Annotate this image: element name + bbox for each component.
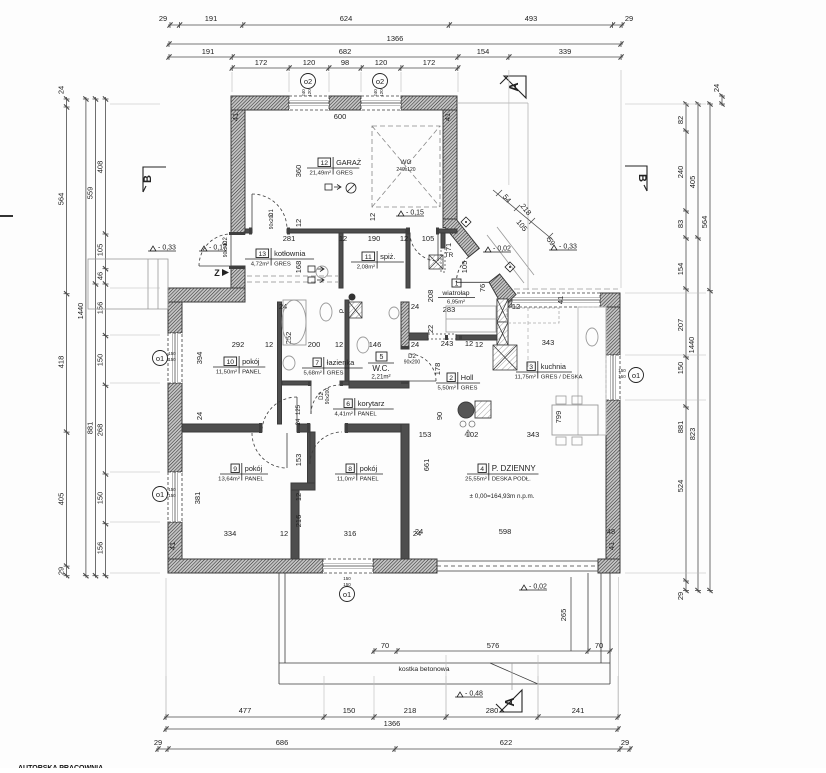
svg-text:48: 48 [607, 527, 615, 536]
svg-text:268: 268 [96, 424, 105, 437]
svg-text:120: 120 [379, 89, 384, 97]
svg-text:8: 8 [348, 466, 352, 473]
svg-text:98: 98 [341, 58, 349, 67]
svg-text:PANEL: PANEL [242, 369, 262, 375]
svg-text:316: 316 [344, 529, 357, 538]
svg-text:90x200: 90x200 [269, 213, 275, 230]
svg-text:70: 70 [381, 641, 389, 650]
svg-text:168: 168 [294, 261, 303, 274]
svg-text:24: 24 [195, 412, 204, 420]
svg-text:4,72m²: 4,72m² [251, 261, 269, 267]
svg-text:881: 881 [676, 421, 685, 434]
svg-text:12: 12 [321, 160, 329, 167]
svg-text:12: 12 [335, 340, 343, 349]
svg-text:pokój: pokój [245, 464, 263, 473]
svg-text:7: 7 [315, 360, 319, 367]
svg-text:o1: o1 [632, 371, 640, 380]
svg-text:WG: WG [400, 159, 411, 166]
svg-text:46: 46 [96, 272, 105, 280]
svg-text:4: 4 [480, 466, 484, 473]
svg-text:120: 120 [375, 58, 388, 67]
svg-text:korytarz: korytarz [358, 399, 385, 408]
svg-text:343: 343 [527, 430, 540, 439]
svg-text:PANEL: PANEL [360, 476, 380, 482]
svg-text:125: 125 [296, 404, 302, 415]
svg-text:799: 799 [554, 411, 563, 424]
svg-text:pokój: pokój [242, 357, 260, 366]
svg-text:120: 120 [307, 89, 312, 97]
svg-text:240: 240 [676, 166, 685, 179]
svg-text:477: 477 [239, 706, 252, 715]
svg-text:41: 41 [231, 113, 240, 121]
svg-text:5,50m²: 5,50m² [437, 385, 455, 391]
svg-text:90: 90 [435, 412, 444, 420]
svg-text:GRES: GRES [336, 170, 353, 176]
svg-text:13,64m²: 13,64m² [218, 476, 240, 482]
svg-text:150: 150 [96, 492, 105, 505]
svg-text:76: 76 [478, 284, 487, 292]
svg-text:3: 3 [529, 364, 533, 371]
svg-text:12: 12 [339, 234, 347, 243]
svg-text:191: 191 [202, 47, 215, 56]
svg-text:- 0,33: - 0,33 [158, 245, 176, 252]
svg-text:25,55m²: 25,55m² [465, 476, 487, 482]
svg-text:191: 191 [205, 14, 218, 23]
svg-text:241: 241 [572, 706, 585, 715]
svg-text:24: 24 [296, 418, 302, 425]
svg-text:105: 105 [460, 261, 469, 274]
svg-text:41: 41 [443, 113, 452, 121]
svg-text:o1: o1 [156, 490, 164, 499]
svg-text:łazienka: łazienka [327, 358, 355, 367]
svg-text:150: 150 [343, 706, 356, 715]
svg-text:153: 153 [419, 430, 432, 439]
svg-text:82: 82 [676, 116, 685, 124]
svg-text:200: 200 [308, 340, 321, 349]
svg-text:29: 29 [676, 592, 685, 600]
svg-text:154: 154 [676, 263, 685, 276]
svg-text:281: 281 [283, 234, 296, 243]
svg-text:12: 12 [294, 493, 303, 501]
svg-text:21,49m²: 21,49m² [309, 170, 331, 176]
svg-text:Z: Z [214, 268, 220, 278]
svg-text:12: 12 [368, 213, 377, 221]
svg-text:105: 105 [96, 244, 105, 257]
svg-text:- 0,02: - 0,02 [529, 584, 547, 591]
svg-text:150: 150 [168, 487, 176, 492]
svg-text:24: 24 [411, 340, 419, 349]
svg-text:B: B [142, 175, 154, 183]
svg-text:524: 524 [676, 480, 685, 493]
svg-text:12: 12 [265, 340, 273, 349]
svg-text:B: B [636, 174, 648, 182]
svg-text:334: 334 [224, 529, 237, 538]
svg-text:o1: o1 [156, 354, 164, 363]
svg-text:493: 493 [525, 14, 538, 23]
svg-text:10: 10 [227, 359, 235, 366]
svg-text:- 0,48: - 0,48 [465, 691, 483, 698]
svg-text:564: 564 [57, 193, 66, 206]
svg-text:564: 564 [700, 216, 709, 229]
svg-text:P: P [339, 309, 346, 313]
svg-text:120: 120 [303, 58, 316, 67]
svg-text:GRES / DESKA: GRES / DESKA [541, 374, 583, 380]
svg-text:150: 150 [168, 493, 176, 498]
svg-text:150: 150 [343, 576, 351, 581]
svg-text:343: 343 [542, 338, 555, 347]
svg-text:12: 12 [294, 219, 303, 227]
svg-text:2,21m²: 2,21m² [371, 374, 390, 381]
svg-text:1440: 1440 [687, 337, 696, 354]
svg-text:150: 150 [618, 368, 626, 373]
svg-text:wiatrołap: wiatrołap [441, 290, 469, 297]
svg-text:o2: o2 [304, 77, 312, 86]
svg-text:624: 624 [340, 14, 353, 23]
svg-text:29: 29 [154, 738, 162, 747]
svg-text:11,75m²: 11,75m² [515, 374, 536, 380]
svg-text:41: 41 [607, 542, 616, 550]
svg-text:280: 280 [486, 706, 499, 715]
svg-text:PANEL: PANEL [358, 411, 378, 417]
svg-text:150: 150 [168, 351, 176, 356]
svg-text:622: 622 [500, 738, 513, 747]
svg-text:576: 576 [487, 641, 500, 650]
svg-text:13: 13 [259, 251, 267, 258]
svg-text:240x120: 240x120 [396, 167, 415, 173]
svg-text:P. DZIENNY: P. DZIENNY [492, 464, 537, 473]
svg-text:A: A [503, 697, 517, 706]
svg-text:150: 150 [96, 354, 105, 367]
svg-text:- 0,15: - 0,15 [406, 210, 424, 217]
svg-text:- 0,17: - 0,17 [209, 245, 227, 252]
svg-text:29: 29 [625, 14, 633, 23]
svg-text:190: 190 [368, 234, 381, 243]
svg-text:spiż.: spiż. [380, 252, 395, 261]
svg-text:41: 41 [168, 542, 177, 550]
svg-text:29: 29 [57, 567, 66, 575]
svg-text:150: 150 [618, 374, 626, 379]
svg-text:405: 405 [57, 493, 66, 506]
svg-text:± 0,00=164,93m n.p.m.: ± 0,00=164,93m n.p.m. [470, 493, 535, 500]
svg-text:598: 598 [499, 527, 512, 536]
svg-text:PANEL: PANEL [245, 476, 265, 482]
svg-text:12: 12 [400, 234, 408, 243]
svg-text:2,08m²: 2,08m² [357, 264, 375, 270]
svg-text:156: 156 [96, 542, 105, 555]
svg-text:12: 12 [465, 339, 473, 348]
svg-text:kuchnia: kuchnia [541, 362, 567, 371]
svg-text:381: 381 [193, 492, 202, 505]
svg-text:1: 1 [455, 281, 459, 288]
svg-text:686: 686 [276, 738, 289, 747]
svg-text:- 0,02: - 0,02 [493, 246, 511, 253]
svg-text:154: 154 [477, 47, 490, 56]
svg-text:29: 29 [159, 14, 167, 23]
svg-text:24: 24 [415, 527, 423, 536]
svg-text:146: 146 [369, 340, 382, 349]
svg-text:12: 12 [280, 529, 288, 538]
svg-text:216: 216 [294, 515, 303, 528]
svg-text:5: 5 [380, 354, 384, 361]
svg-text:1366: 1366 [384, 719, 401, 728]
svg-text:o1: o1 [343, 590, 351, 599]
svg-text:29: 29 [621, 738, 629, 747]
svg-text:11,0m²: 11,0m² [337, 476, 355, 482]
svg-text:41: 41 [556, 296, 565, 304]
svg-text:pokój: pokój [360, 464, 378, 473]
svg-text:o2: o2 [376, 77, 384, 86]
svg-text:DESKA PODŁ.: DESKA PODŁ. [492, 476, 531, 482]
svg-text:Holl: Holl [461, 373, 474, 382]
svg-text:70: 70 [595, 641, 603, 650]
svg-text:GRES: GRES [274, 261, 291, 267]
svg-text:24: 24 [712, 84, 721, 92]
svg-text:24: 24 [57, 86, 66, 94]
svg-text:W.C.: W.C. [372, 364, 389, 373]
svg-text:243: 243 [441, 339, 454, 348]
svg-text:150: 150 [168, 357, 176, 362]
svg-text:682: 682 [339, 47, 352, 56]
svg-text:GRES: GRES [461, 385, 478, 391]
svg-text:156: 156 [96, 302, 105, 315]
svg-text:1366: 1366 [387, 34, 404, 43]
svg-text:218: 218 [404, 706, 417, 715]
svg-text:150: 150 [676, 362, 685, 375]
svg-text:172: 172 [423, 58, 436, 67]
svg-text:TR: TR [445, 252, 454, 259]
svg-text:83: 83 [676, 220, 685, 228]
svg-text:4,41m²: 4,41m² [334, 411, 352, 417]
svg-text:12: 12 [475, 340, 483, 349]
svg-text:600: 600 [334, 112, 347, 121]
svg-text:105: 105 [422, 234, 435, 243]
svg-text:823: 823 [688, 428, 697, 441]
svg-text:2: 2 [449, 375, 453, 382]
svg-text:GARAŻ: GARAŻ [336, 158, 362, 167]
svg-text:11,50m²: 11,50m² [216, 369, 237, 375]
svg-text:11: 11 [365, 254, 372, 261]
svg-text:172: 172 [255, 58, 268, 67]
svg-text:339: 339 [559, 47, 572, 56]
svg-text:12: 12 [512, 302, 520, 311]
svg-text:208: 208 [426, 290, 435, 303]
svg-text:1440: 1440 [76, 303, 85, 320]
svg-text:- 0,33: - 0,33 [559, 244, 577, 251]
svg-text:408: 408 [96, 161, 105, 174]
svg-text:6: 6 [346, 401, 350, 408]
svg-text:240: 240 [373, 89, 378, 97]
svg-text:22: 22 [426, 325, 435, 333]
svg-text:265: 265 [559, 609, 568, 622]
svg-text:GRES: GRES [327, 370, 344, 376]
svg-text:5,68m²: 5,68m² [303, 370, 321, 376]
svg-text:661: 661 [422, 459, 431, 472]
svg-text:418: 418 [57, 356, 66, 369]
svg-text:kotłownia: kotłownia [274, 249, 306, 258]
svg-text:559: 559 [86, 187, 95, 200]
svg-text:292: 292 [232, 340, 245, 349]
svg-text:153: 153 [294, 454, 303, 467]
svg-text:150: 150 [343, 582, 351, 587]
svg-text:360: 360 [294, 165, 303, 178]
svg-text:90x200: 90x200 [325, 388, 331, 405]
svg-text:kostka betonowa: kostka betonowa [398, 666, 449, 673]
svg-text:90x200: 90x200 [404, 360, 421, 366]
svg-text:394: 394 [195, 352, 204, 365]
svg-text:24: 24 [411, 302, 419, 311]
svg-text:178: 178 [433, 363, 442, 376]
svg-text:71: 71 [444, 243, 453, 251]
svg-text:207: 207 [676, 319, 685, 332]
svg-text:881: 881 [86, 422, 95, 435]
svg-text:405: 405 [688, 176, 697, 189]
svg-text:9: 9 [233, 466, 237, 473]
svg-text:240: 240 [301, 89, 306, 97]
